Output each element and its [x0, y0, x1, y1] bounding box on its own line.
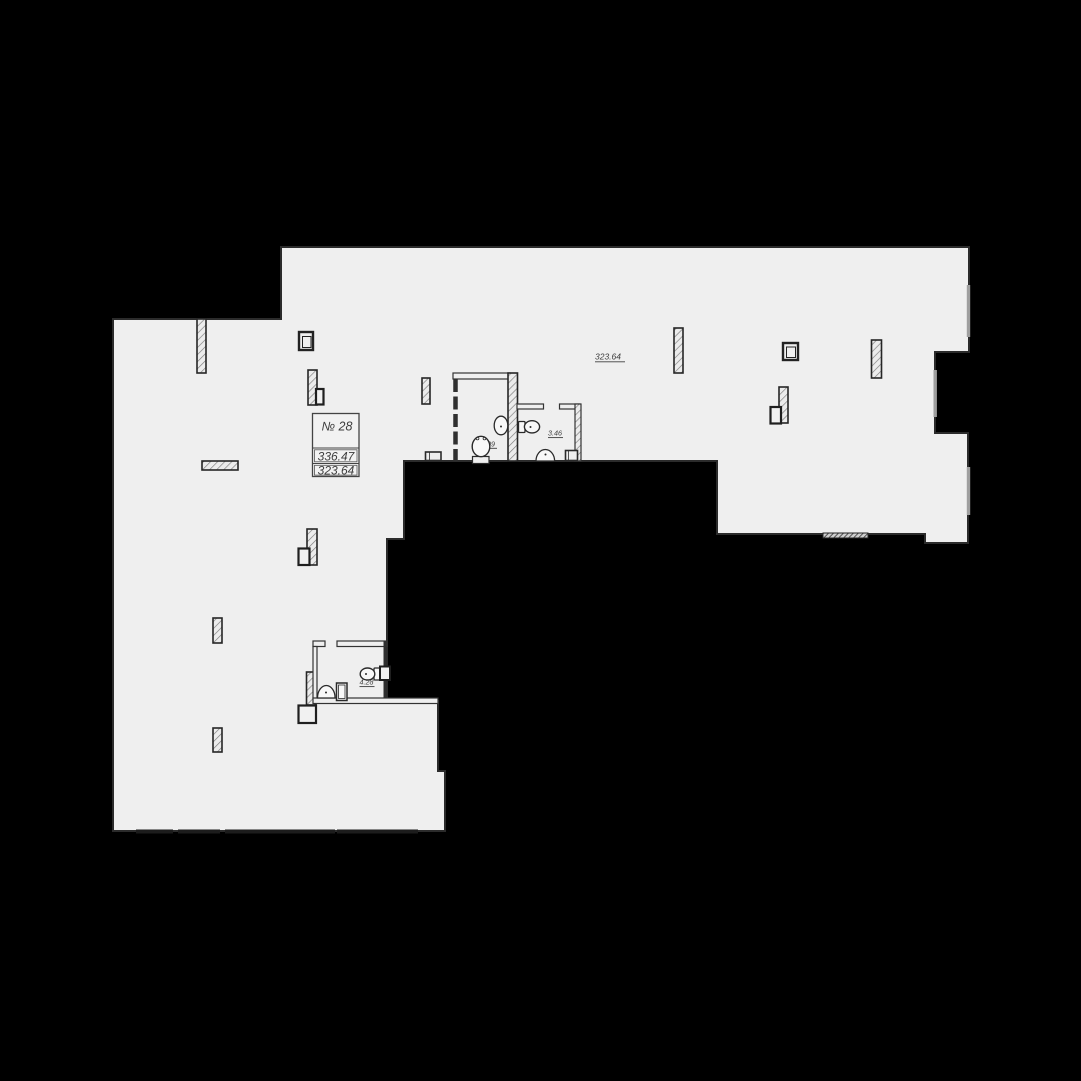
boiler-icon — [337, 683, 348, 701]
square-column — [783, 343, 798, 360]
duct-box — [299, 706, 317, 724]
toilet-icon — [519, 421, 540, 433]
column-hatched — [197, 319, 206, 373]
column-hatched — [422, 378, 430, 404]
unit-area-top: 336.47 — [318, 449, 356, 463]
wall — [337, 641, 387, 647]
floor-plan-page: 3.09 3.46 — [0, 0, 1081, 1081]
floor-area-note: 323.64 — [595, 352, 625, 362]
wall — [313, 647, 317, 699]
column-hatched — [213, 728, 222, 752]
unit-number: № 28 — [322, 420, 353, 434]
sink-icon — [494, 416, 508, 435]
duct-box — [299, 549, 310, 566]
wall — [313, 641, 325, 647]
wall-hatched — [508, 373, 518, 461]
column-hatched — [674, 328, 683, 373]
wall-hatched-strip — [823, 533, 868, 538]
duct-box — [771, 407, 782, 424]
duct-box — [316, 389, 324, 405]
window-segment — [934, 370, 937, 417]
wall — [453, 373, 510, 379]
room-area-label: 3.46 — [548, 429, 562, 438]
floor-plan-canvas: 3.09 3.46 — [0, 0, 1081, 1081]
floor-area-value: 323.64 — [595, 352, 621, 362]
toilet-icon — [360, 668, 380, 680]
wall-bracket-icon — [380, 667, 390, 681]
floor-drain-icon — [566, 451, 578, 461]
column-hatched — [872, 340, 882, 378]
wall — [517, 404, 544, 409]
column-hatched — [202, 461, 238, 470]
column-hatched — [213, 618, 222, 643]
shaft-box — [426, 452, 442, 461]
window-segment — [967, 467, 970, 515]
unit-area-bottom: 323.64 — [318, 464, 355, 478]
window-segment — [967, 285, 970, 337]
unit-info-box: № 28 336.47 323.64 — [313, 414, 360, 478]
square-column — [299, 332, 313, 350]
wall — [313, 698, 438, 704]
toilet-icon — [472, 436, 490, 463]
